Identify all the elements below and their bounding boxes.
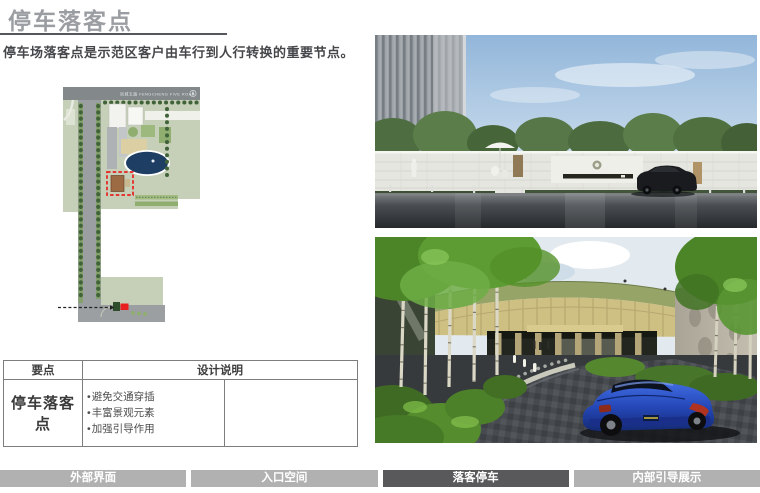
tab-exterior-interface[interactable]: 外部界面: [0, 470, 186, 487]
empty-cell: [225, 380, 358, 447]
note-item: 避免交通穿插: [87, 389, 222, 405]
entrance-rendering-image: [375, 35, 757, 228]
note-item: 丰富景观元素: [87, 405, 222, 421]
point-cell: 停车落客点: [4, 380, 83, 447]
key-points-table: 要点 设计说明 停车落客点 避免交通穿插 丰富景观元素 加强引导作用: [3, 360, 358, 447]
slide: 停车落客点 停车场落客点是示范区客户由车行到人行转换的重要节点。 凤城五路 FE…: [0, 0, 760, 493]
title-rule: [0, 33, 227, 35]
dropoff-rendering-image: [375, 237, 757, 443]
pedestrian: [411, 163, 417, 177]
tab-interior-guidance[interactable]: 内部引导展示: [574, 470, 760, 487]
page-subtitle: 停车场落客点是示范区客户由车行到人行转换的重要节点。: [3, 42, 354, 61]
section-tabs: 外部界面 入口空间 落客停车 内部引导展示: [0, 470, 760, 487]
site-plan-image: 凤城五路 FENGCHENG FIVE ROAD: [63, 87, 200, 322]
page-title: 停车落客点: [8, 2, 133, 36]
table-header-description: 设计说明: [83, 361, 358, 380]
road-label: 凤城五路 FENGCHENG FIVE ROAD: [120, 91, 195, 97]
tab-entrance-space[interactable]: 入口空间: [191, 470, 377, 487]
tab-dropoff-parking[interactable]: 落客停车: [383, 470, 569, 487]
table-row: 停车落客点 避免交通穿插 丰富景观元素 加强引导作用: [4, 380, 358, 447]
canopy: [527, 325, 623, 332]
notes-cell: 避免交通穿插 丰富景观元素 加强引导作用: [83, 380, 225, 447]
table-header-point: 要点: [4, 361, 83, 380]
note-item: 加强引导作用: [87, 421, 222, 437]
